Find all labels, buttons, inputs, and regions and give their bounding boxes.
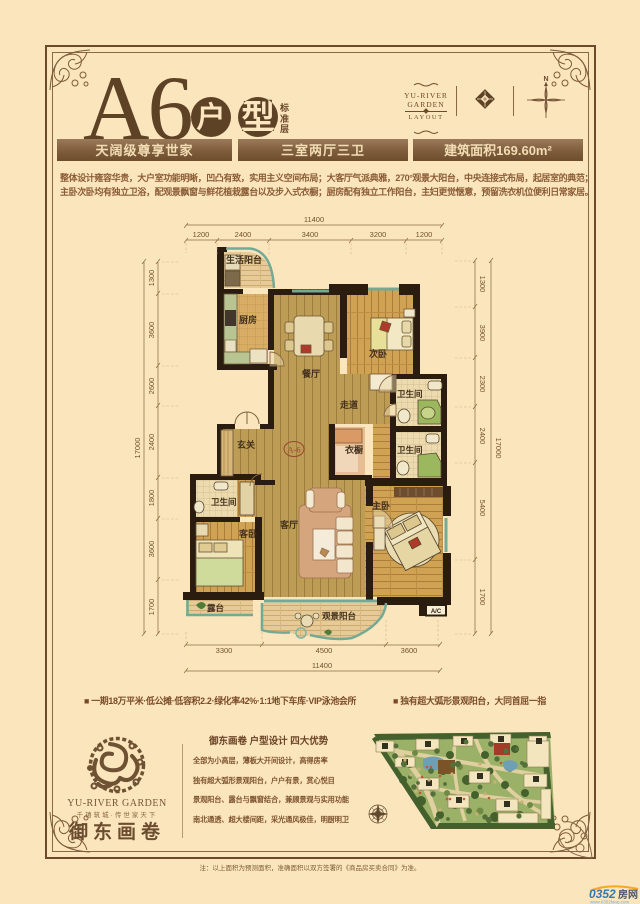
svg-text:17000: 17000 (133, 438, 142, 459)
svg-text:2600: 2600 (147, 378, 156, 395)
svg-text:主卧: 主卧 (372, 500, 390, 511)
svg-text:3900: 3900 (478, 325, 487, 342)
svg-text:卫生间: 卫生间 (397, 445, 423, 455)
svg-text:2400: 2400 (147, 434, 156, 451)
svg-text:1700: 1700 (478, 589, 487, 606)
svg-text:型: 型 (241, 99, 275, 137)
svg-text:3600: 3600 (401, 646, 418, 655)
svg-text:御东画卷: 御东画卷 (68, 820, 165, 843)
svg-text:1200: 1200 (416, 230, 433, 239)
svg-text:11400: 11400 (304, 215, 324, 224)
svg-text:露台: 露台 (207, 603, 225, 613)
svg-text:N: N (543, 76, 548, 83)
svg-text:客厅: 客厅 (279, 519, 298, 530)
svg-text:1300: 1300 (147, 270, 156, 287)
svg-text:2400: 2400 (478, 428, 487, 445)
svg-text:餐厅: 餐厅 (301, 368, 320, 379)
svg-text:千禧筑城·传世家天下: 千禧筑城·传世家天下 (77, 810, 158, 819)
svg-text:A-6: A-6 (287, 445, 300, 455)
svg-text:卫生间: 卫生间 (211, 497, 237, 507)
svg-text:观景阳台: 观景阳台 (322, 611, 357, 621)
svg-text:11400: 11400 (312, 661, 332, 670)
svg-text:走道: 走道 (339, 399, 358, 410)
svg-text:2300: 2300 (478, 376, 487, 393)
svg-text:3200: 3200 (370, 230, 387, 239)
svg-text:1200: 1200 (193, 230, 210, 239)
svg-text:玄关: 玄关 (237, 439, 255, 450)
svg-text:生活阳台: 生活阳台 (226, 254, 262, 265)
svg-text:厨房: 厨房 (239, 314, 257, 325)
svg-text:客卧: 客卧 (238, 528, 257, 539)
svg-text:3600: 3600 (147, 541, 156, 558)
svg-text:1800: 1800 (147, 490, 156, 507)
svg-text:3600: 3600 (147, 322, 156, 339)
svg-text:衣橱: 衣橱 (345, 444, 363, 455)
svg-text:1700: 1700 (147, 599, 156, 616)
svg-text:户: 户 (196, 100, 225, 134)
svg-text:www.0352fang.com: www.0352fang.com (590, 900, 630, 904)
svg-text:2400: 2400 (235, 230, 252, 239)
svg-text:A/C: A/C (431, 609, 442, 615)
svg-text:卫生间: 卫生间 (397, 389, 423, 399)
svg-text:YU-RIVER GARDEN: YU-RIVER GARDEN (67, 798, 166, 809)
svg-text:5400: 5400 (478, 500, 487, 517)
svg-text:1300: 1300 (478, 276, 487, 293)
svg-text:3300: 3300 (216, 646, 233, 655)
svg-text:4500: 4500 (316, 646, 333, 655)
svg-text:3400: 3400 (302, 230, 319, 239)
svg-text:次卧: 次卧 (369, 348, 387, 359)
svg-text:17000: 17000 (494, 438, 503, 459)
